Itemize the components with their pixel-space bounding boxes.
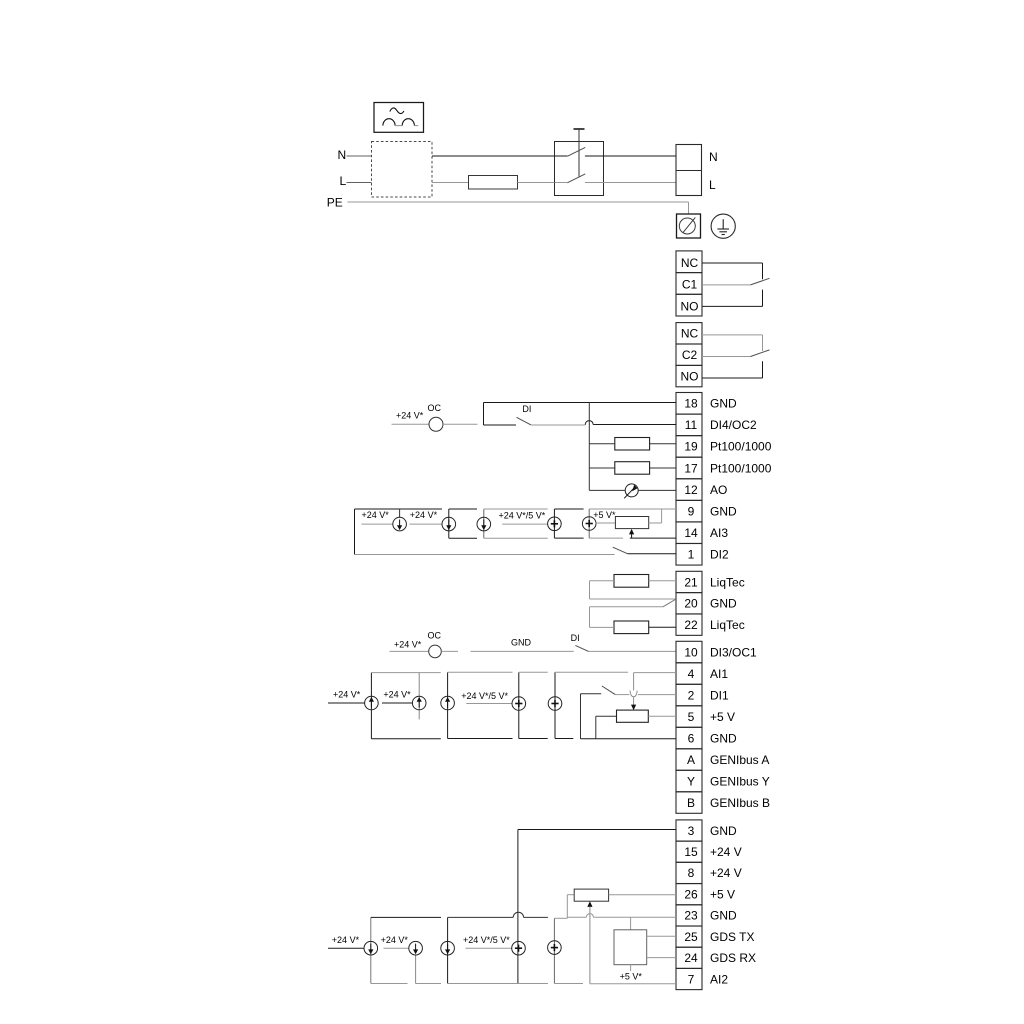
svg-text:GND: GND	[710, 397, 737, 411]
svg-text:GENIbus Y: GENIbus Y	[710, 774, 770, 788]
svg-text:AI1: AI1	[710, 667, 728, 681]
svg-text:GDS TX: GDS TX	[710, 930, 754, 944]
svg-text:9: 9	[688, 504, 695, 518]
svg-text:24: 24	[684, 951, 698, 965]
svg-text:+5 V: +5 V	[710, 710, 735, 724]
svg-text:DI1: DI1	[710, 688, 729, 702]
svg-text:N: N	[338, 148, 347, 162]
svg-text:LiqTec: LiqTec	[710, 618, 745, 632]
svg-text:DI3/OC1: DI3/OC1	[710, 645, 757, 659]
svg-text:GND: GND	[710, 824, 737, 838]
svg-text:19: 19	[684, 440, 698, 454]
svg-text:8: 8	[688, 866, 695, 880]
svg-text:GENIbus B: GENIbus B	[710, 796, 770, 810]
svg-text:25: 25	[684, 930, 698, 944]
svg-text:+24 V*/5 V*: +24 V*/5 V*	[499, 510, 546, 520]
svg-text:GENIbus A: GENIbus A	[710, 753, 769, 767]
svg-text:20: 20	[684, 597, 698, 611]
svg-text:21: 21	[684, 575, 698, 589]
svg-text:17: 17	[684, 461, 698, 475]
svg-text:GND: GND	[710, 504, 737, 518]
svg-text:GDS RX: GDS RX	[710, 951, 756, 965]
svg-text:Pt100/1000: Pt100/1000	[710, 461, 772, 475]
svg-text:A: A	[687, 753, 695, 767]
svg-text:LiqTec: LiqTec	[710, 575, 745, 589]
svg-text:DI2: DI2	[710, 548, 729, 562]
svg-text:GND: GND	[710, 909, 737, 923]
svg-text:+24 V*: +24 V*	[362, 510, 390, 520]
svg-text:15: 15	[684, 845, 698, 859]
svg-text:7: 7	[688, 972, 695, 986]
svg-text:+24 V*: +24 V*	[396, 411, 424, 421]
svg-text:GND: GND	[710, 731, 737, 745]
svg-text:5: 5	[688, 710, 695, 724]
svg-text:10: 10	[684, 645, 698, 659]
svg-text:DI: DI	[571, 633, 580, 643]
svg-text:14: 14	[684, 526, 698, 540]
svg-text:NC: NC	[681, 256, 699, 270]
svg-text:26: 26	[684, 888, 698, 902]
svg-text:+24 V*: +24 V*	[333, 690, 361, 700]
svg-text:NO: NO	[681, 299, 699, 313]
svg-text:11: 11	[685, 418, 698, 432]
svg-text:L: L	[709, 178, 716, 192]
svg-text:Y: Y	[687, 774, 695, 788]
svg-text:DI4/OC2: DI4/OC2	[710, 418, 757, 432]
svg-text:AO: AO	[710, 483, 727, 497]
svg-text:GND: GND	[511, 637, 532, 647]
svg-text:OC: OC	[428, 403, 442, 413]
svg-text:+24 V: +24 V	[710, 845, 742, 859]
svg-text:18: 18	[684, 397, 698, 411]
svg-text:GND: GND	[710, 597, 737, 611]
svg-text:+24 V*: +24 V*	[383, 690, 411, 700]
svg-text:+24 V*/5 V*: +24 V*/5 V*	[461, 691, 508, 701]
svg-text:22: 22	[684, 618, 698, 632]
svg-text:+5 V: +5 V	[710, 888, 735, 902]
svg-text:C2: C2	[682, 348, 698, 362]
svg-text:+24 V*: +24 V*	[410, 510, 438, 520]
svg-text:DI: DI	[522, 404, 531, 414]
svg-text:+24 V: +24 V	[710, 866, 742, 880]
svg-text:23: 23	[684, 909, 698, 923]
svg-text:12: 12	[684, 483, 698, 497]
svg-text:AI2: AI2	[710, 972, 728, 986]
svg-text:C1: C1	[682, 278, 698, 292]
svg-text:2: 2	[688, 688, 695, 702]
svg-text:NC: NC	[681, 327, 699, 341]
svg-text:3: 3	[688, 824, 695, 838]
svg-text:Pt100/1000: Pt100/1000	[710, 440, 772, 454]
svg-text:N: N	[709, 150, 718, 164]
svg-text:+5 V*: +5 V*	[620, 972, 643, 982]
svg-text:NO: NO	[681, 369, 699, 383]
svg-text:+24 V*: +24 V*	[332, 935, 360, 945]
svg-text:1: 1	[688, 548, 695, 562]
svg-text:OC: OC	[428, 631, 442, 641]
svg-text:+24 V*/5 V*: +24 V*/5 V*	[463, 935, 510, 945]
svg-text:+24 V*: +24 V*	[394, 639, 422, 649]
svg-text:+5 V*: +5 V*	[593, 510, 616, 520]
svg-text:L: L	[340, 174, 347, 188]
svg-text:6: 6	[688, 731, 695, 745]
svg-text:PE: PE	[327, 195, 343, 209]
svg-text:B: B	[687, 796, 695, 810]
svg-text:+24 V*: +24 V*	[381, 935, 409, 945]
svg-text:4: 4	[688, 667, 695, 681]
svg-text:AI3: AI3	[710, 526, 728, 540]
